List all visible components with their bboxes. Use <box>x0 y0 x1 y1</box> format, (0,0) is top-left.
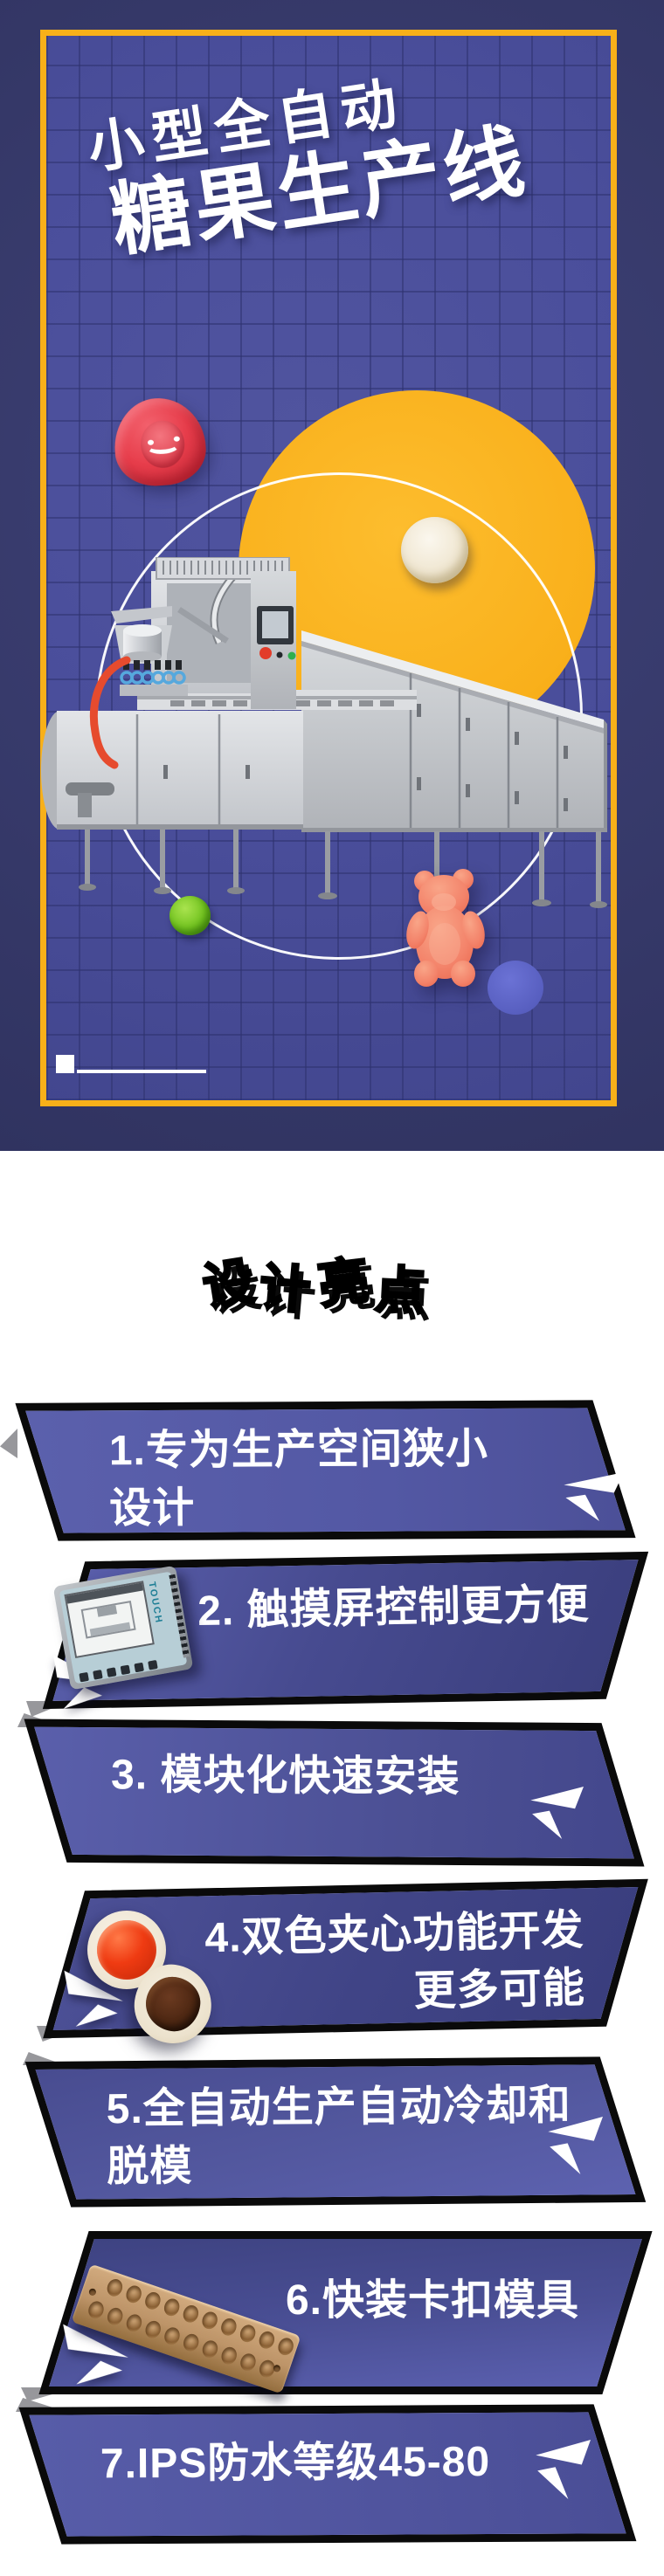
section-heading: 设计亮点 <box>157 1238 472 1322</box>
mold-cavity <box>257 2330 277 2351</box>
mold-cavity <box>238 2323 258 2344</box>
mold-cavity <box>181 2304 201 2325</box>
cream-round-candy <box>401 517 468 583</box>
blue-dot-decoration <box>488 961 543 1015</box>
mold-cavity <box>276 2336 296 2357</box>
corner-mark-square <box>56 1055 74 1073</box>
paper-plane-icon <box>535 2440 591 2499</box>
filled-candy-image <box>87 1911 218 2043</box>
candy-production-machine-image <box>39 557 607 915</box>
corner-mark-line <box>77 1070 206 1073</box>
hmi-screen <box>64 1581 154 1658</box>
paper-plane-icon <box>563 1472 624 1521</box>
mold-cavity <box>239 2352 259 2373</box>
paper-plane-icon <box>547 2117 603 2174</box>
mold-cavity <box>219 2317 239 2338</box>
hmi-diagram <box>81 1601 136 1639</box>
mold-cavity <box>200 2338 220 2359</box>
machine-feet <box>79 830 245 894</box>
highlight-text-1: 1.专为生产空间狭小 设计 <box>45 1408 607 1533</box>
highlight-text-5: 5.全自动生产自动冷却和 脱模 <box>55 2064 615 2200</box>
mold-cavity <box>163 2325 183 2346</box>
touchscreen-panel-image: TOUCH <box>53 1566 194 1691</box>
mold-cavity <box>124 2283 144 2304</box>
green-gummy-ball <box>169 896 211 935</box>
paper-plane-icon <box>529 1787 584 1839</box>
emergency-stop-button <box>259 647 272 659</box>
mold-cavity <box>124 2312 144 2333</box>
mold-cavity <box>86 2299 107 2320</box>
mold-cavity <box>105 2306 125 2327</box>
mold-cavity <box>200 2310 220 2331</box>
mold-cavity <box>162 2297 182 2318</box>
mold-cavity <box>219 2345 239 2366</box>
promo-poster: 小型全自动 糖果生产线 设计亮点 1.专为生产空间狭小 设计 2. 触摸屏控制更… <box>0 0 664 2576</box>
mold-cavity <box>181 2331 201 2352</box>
start-button <box>288 652 296 660</box>
mold-cavity <box>143 2319 163 2340</box>
hero-section: 小型全自动 糖果生产线 <box>0 0 664 1151</box>
red-gummy-candy <box>112 395 209 488</box>
mold-cavity <box>143 2290 163 2311</box>
mold-cavity <box>105 2277 125 2298</box>
highlight-text-7: 7.IPS防水等级45-80 <box>48 2412 608 2536</box>
highlight-banner-1: 1.专为生产空间狭小 设计 <box>15 1400 635 1540</box>
orange-gummy-bear <box>398 867 493 988</box>
control-screen <box>257 606 294 644</box>
